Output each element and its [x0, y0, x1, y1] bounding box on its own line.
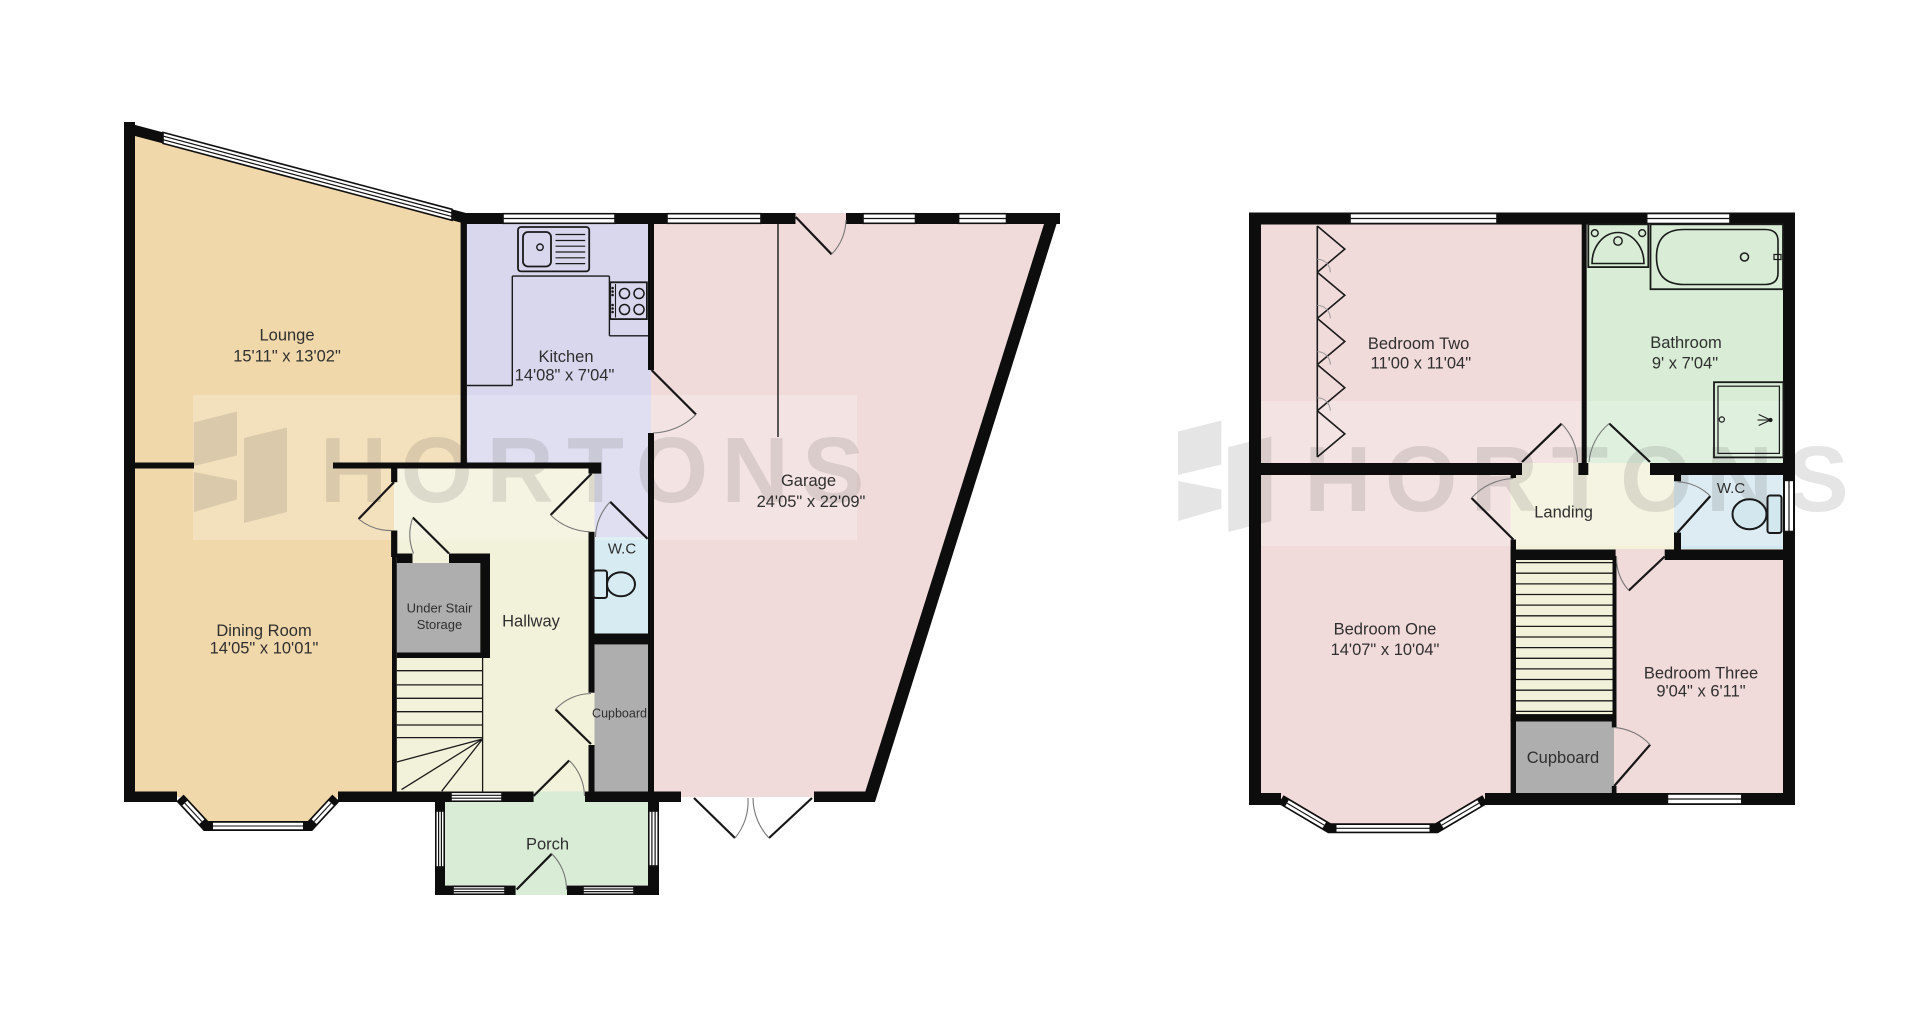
svg-text:14'07" x 10'04": 14'07" x 10'04": [1331, 641, 1440, 659]
svg-text:Storage: Storage: [417, 617, 463, 632]
svg-text:11'00 x 11'04": 11'00 x 11'04": [1371, 355, 1472, 373]
svg-text:15'11" x 13'02": 15'11" x 13'02": [233, 348, 341, 366]
svg-text:Kitchen: Kitchen: [538, 348, 593, 366]
svg-text:Bedroom One: Bedroom One: [1334, 621, 1437, 639]
svg-text:Lounge: Lounge: [259, 327, 314, 345]
svg-text:Cupboard: Cupboard: [1527, 749, 1599, 767]
svg-text:Bedroom Three: Bedroom Three: [1644, 665, 1758, 683]
svg-text:Bathroom: Bathroom: [1650, 334, 1722, 352]
svg-text:Under Stair: Under Stair: [407, 601, 473, 616]
svg-text:W.C: W.C: [608, 541, 636, 558]
svg-text:Dining Room: Dining Room: [216, 622, 311, 640]
svg-text:9' x 7'04": 9' x 7'04": [1652, 355, 1718, 373]
svg-text:Cupboard: Cupboard: [592, 707, 647, 721]
svg-text:Bedroom Two: Bedroom Two: [1368, 335, 1470, 353]
svg-text:W.C: W.C: [1717, 480, 1745, 497]
svg-text:24'05" x 22'09": 24'05" x 22'09": [757, 493, 866, 511]
svg-text:9'04" x 6'11": 9'04" x 6'11": [1656, 683, 1745, 701]
svg-text:Landing: Landing: [1534, 504, 1593, 522]
svg-text:Garage: Garage: [781, 472, 836, 490]
svg-text:14'08" x 7'04": 14'08" x 7'04": [515, 367, 615, 385]
svg-text:14'05" x 10'01": 14'05" x 10'01": [210, 640, 319, 658]
svg-text:Porch: Porch: [526, 836, 569, 854]
svg-text:Hallway: Hallway: [502, 613, 561, 631]
